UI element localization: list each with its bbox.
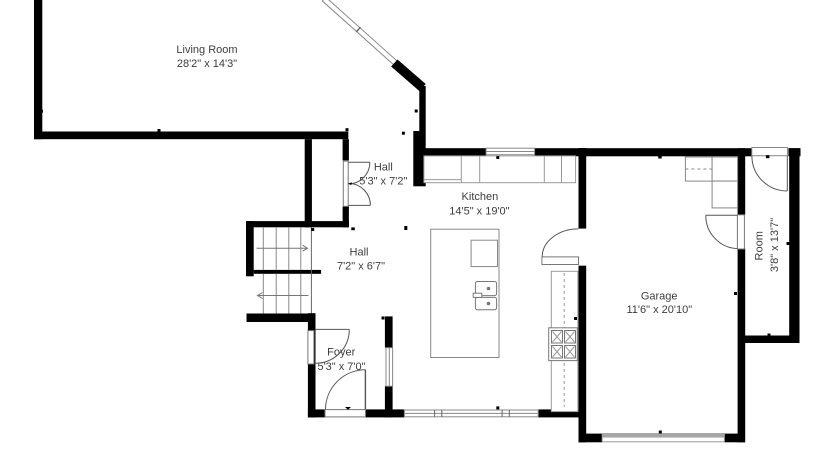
svg-text:28'2" x 14'3": 28'2" x 14'3" [177,58,237,70]
svg-text:3'8" x 13'7": 3'8" x 13'7" [769,218,781,272]
svg-text:5'3" x 7'0": 5'3" x 7'0" [317,361,365,373]
svg-text:Hall: Hall [374,162,393,174]
svg-text:Garage: Garage [641,291,678,303]
svg-text:Foyer: Foyer [327,347,355,359]
svg-text:Kitchen: Kitchen [462,191,499,203]
svg-text:11'6" x 20'10": 11'6" x 20'10" [626,304,692,316]
svg-text:7'2" x 6'7": 7'2" x 6'7" [337,261,385,273]
svg-text:14'5" x 19'0": 14'5" x 19'0" [449,206,509,218]
svg-text:Living Room: Living Room [176,44,237,56]
svg-text:Hall: Hall [350,247,369,259]
svg-text:5'3" x 7'2": 5'3" x 7'2" [359,176,407,188]
svg-text:Room: Room [754,231,766,260]
